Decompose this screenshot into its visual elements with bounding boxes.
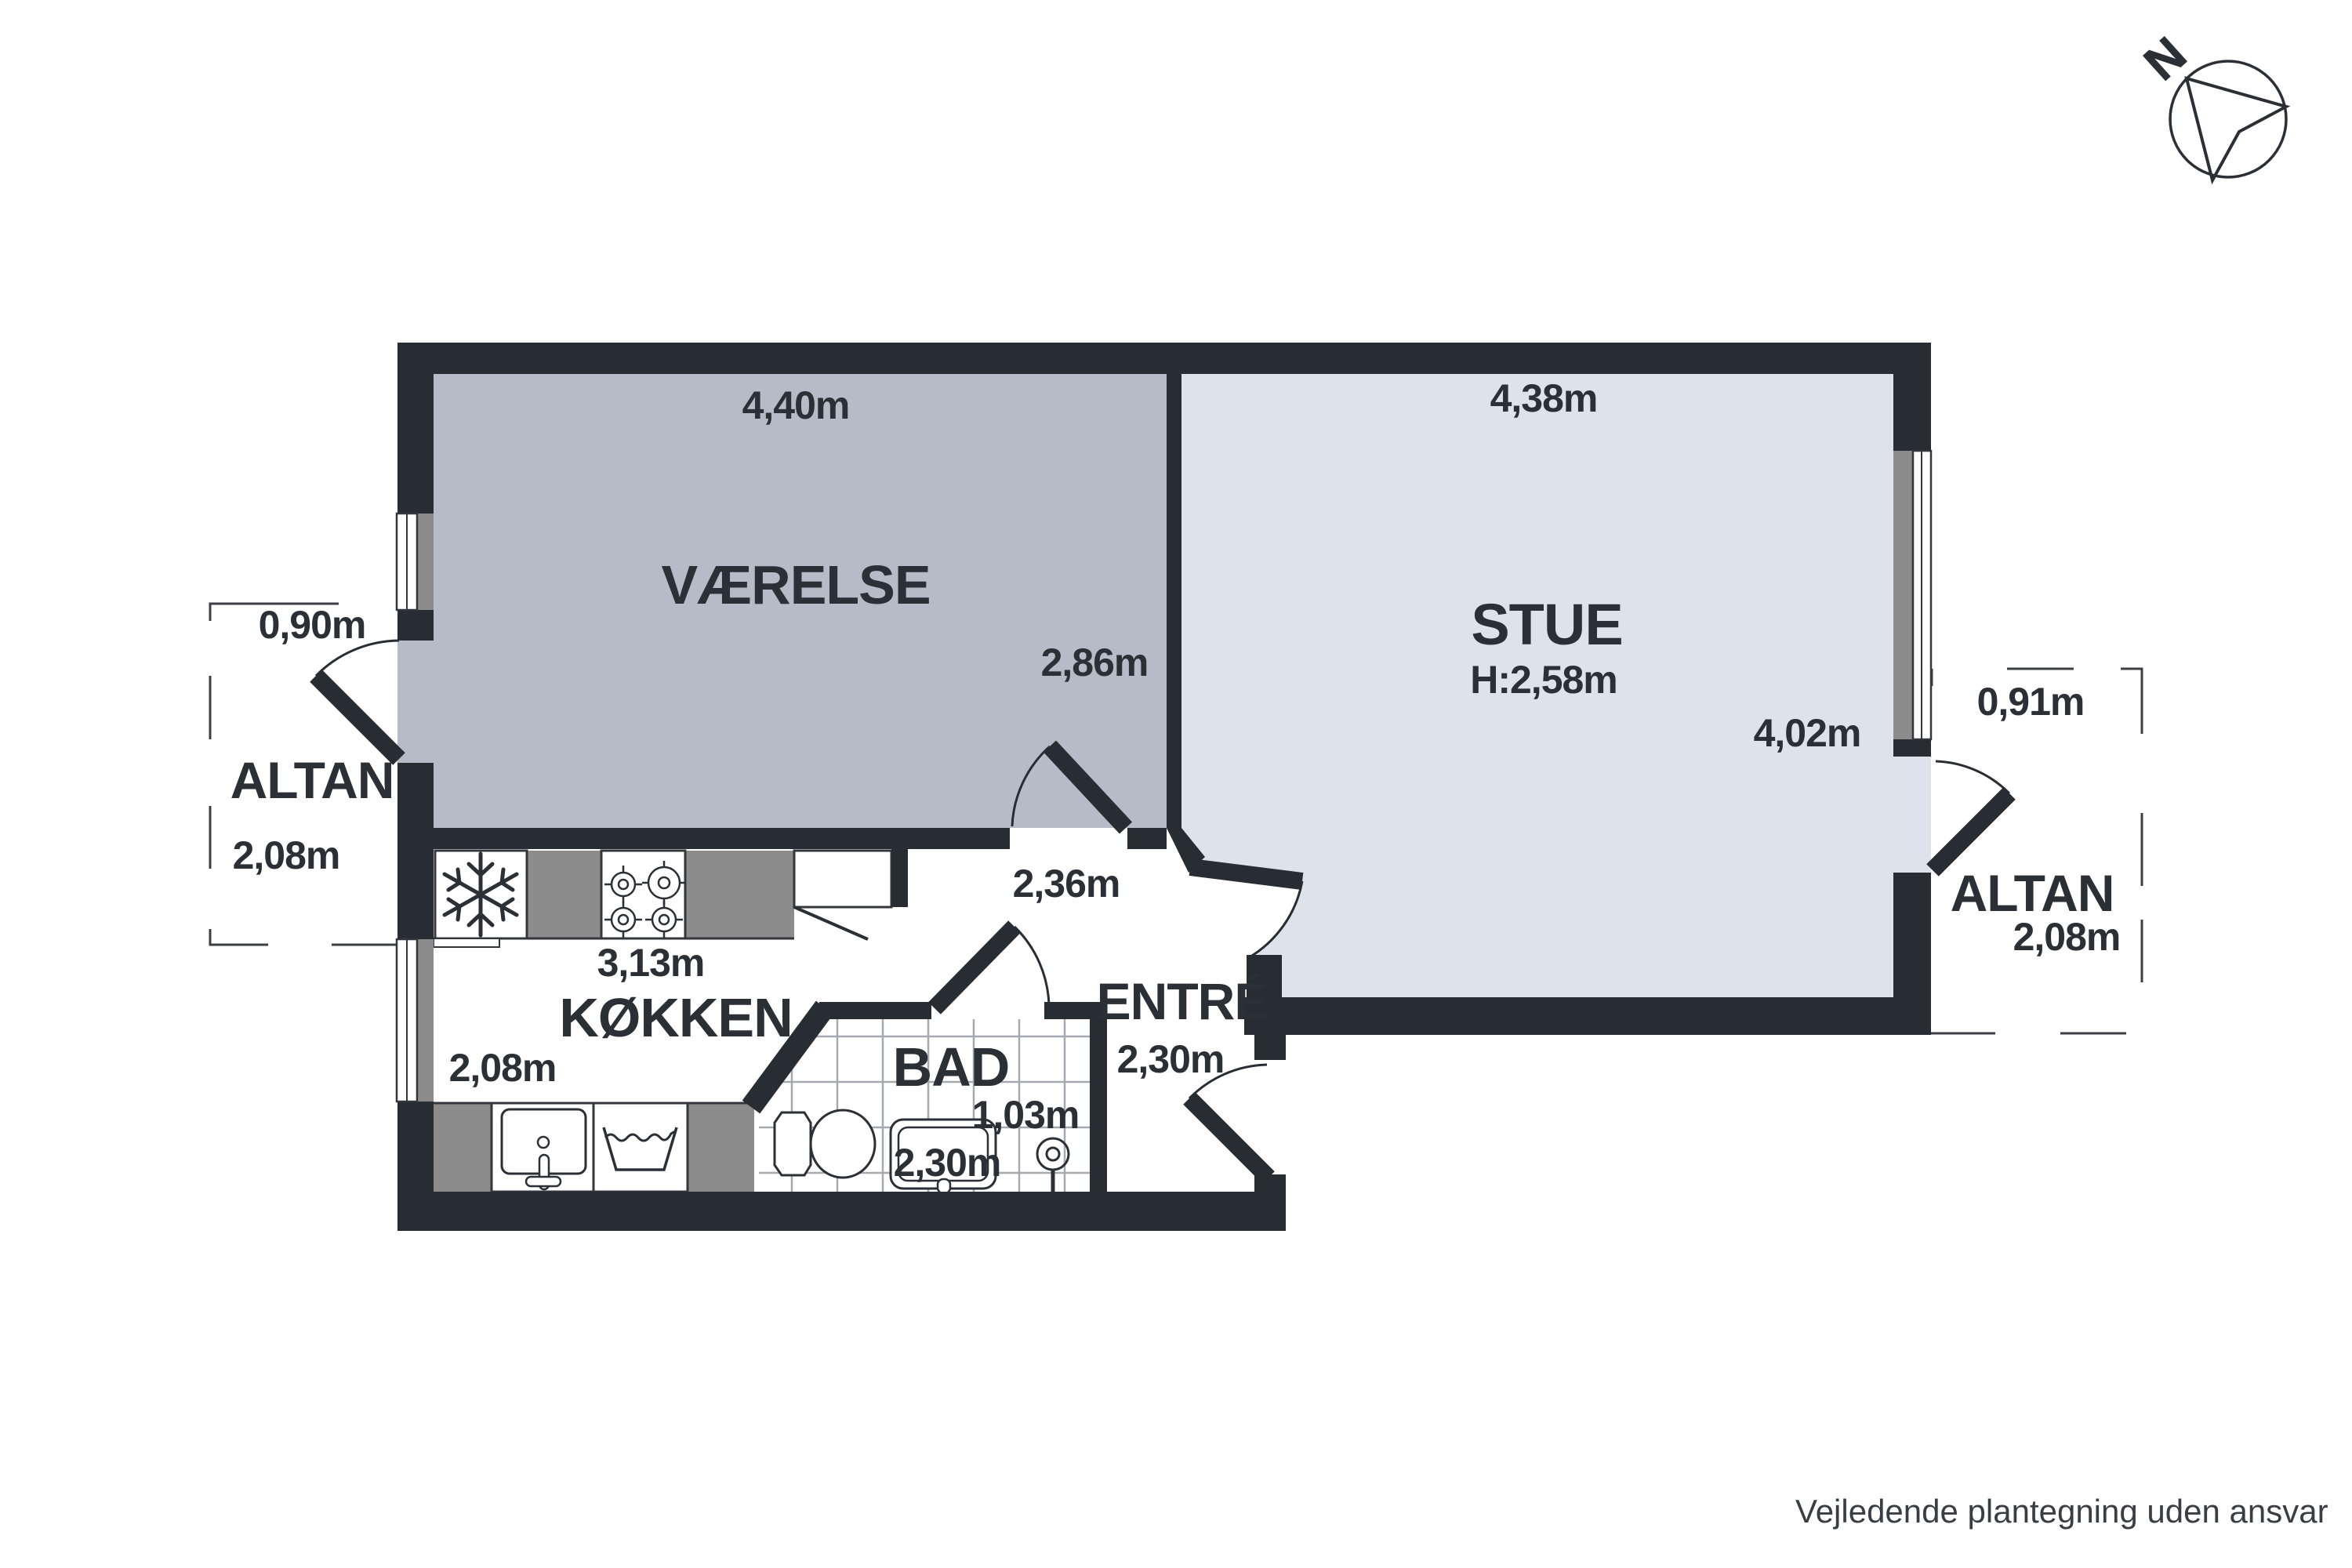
toilet-icon (775, 1110, 875, 1178)
balcony-door-left (316, 641, 399, 759)
dim-bad-depth: 2,30m (894, 1141, 1001, 1185)
north-arrow-icon (2187, 78, 2286, 180)
dim-bad-width: 1,03m (972, 1093, 1080, 1137)
room-label-altan-left: ALTAN (230, 751, 394, 809)
dim-altan-left-depth: 2,08m (233, 833, 340, 877)
kitchen-cabinet (794, 851, 891, 939)
room-label-entre: ENTRÉ (1097, 972, 1269, 1030)
washing-machine-icon (593, 1103, 688, 1192)
dim-altan-right-depth: 2,08m (2013, 915, 2121, 959)
vaerelse-window (397, 514, 434, 610)
fridge-icon (434, 851, 527, 947)
stue-balcony-door-opening (1893, 757, 1931, 873)
entrance-door (1189, 1065, 1269, 1178)
room-label-koekken: KØKKEN (559, 987, 792, 1048)
dim-entre-depth: 2,30m (1117, 1037, 1225, 1081)
floorplan-page: N 4,40m VÆRELSE 2,86m 4,38m STUE H:2,58m… (0, 0, 2352, 1568)
bad-door (935, 927, 1049, 1008)
kitchen-sink-icon (492, 1103, 593, 1192)
disclaimer-text: Vejledende plantegning uden ansvar (1795, 1493, 2328, 1530)
dim-vaerelse-depth: 2,86m (1041, 641, 1149, 684)
vaerelse-balcony-door-opening (397, 641, 434, 763)
compass: N (2134, 27, 2286, 180)
room-label-altan-right: ALTAN (1951, 864, 2114, 922)
dim-altan-left-width: 0,90m (259, 603, 366, 647)
dim-koekken-width: 3,13m (597, 941, 705, 985)
stove-burners-icon (601, 851, 686, 938)
balcony-door-right (1933, 761, 2009, 870)
dim-entre-width: 2,36m (1013, 862, 1120, 906)
dim-vaerelse-width: 4,40m (742, 383, 850, 427)
dim-stue-width: 4,38m (1490, 376, 1598, 420)
room-label-stue: STUE (1471, 592, 1622, 657)
dim-stue-ceiling: H:2,58m (1470, 658, 1617, 702)
dim-stue-depth: 4,02m (1754, 711, 1861, 755)
floorplan-drawing: N 4,40m VÆRELSE 2,86m 4,38m STUE H:2,58m… (0, 0, 2352, 1568)
dim-koekken-depth: 2,08m (449, 1046, 557, 1090)
dim-altan-right-width: 0,91m (1977, 680, 2085, 724)
room-label-vaerelse: VÆRELSE (661, 554, 930, 615)
room-label-bad: BAD (893, 1036, 1010, 1098)
stue-window (1893, 451, 1931, 739)
kitchen-window (397, 939, 434, 1102)
